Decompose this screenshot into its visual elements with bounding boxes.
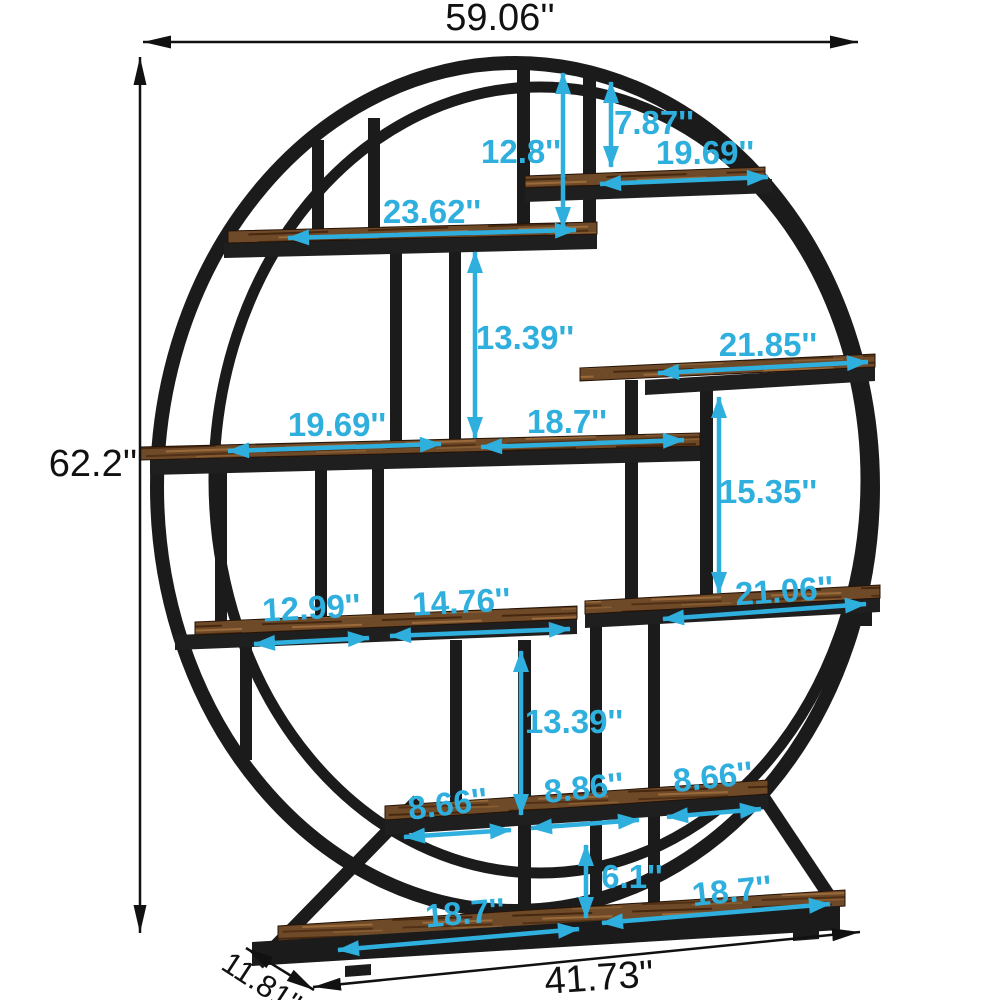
dim-label: 21.85'' <box>719 326 817 363</box>
dim-label: 12.8'' <box>481 133 561 170</box>
dim-label: 14.76'' <box>411 580 511 622</box>
frame-post <box>372 457 384 617</box>
frame-post <box>215 460 227 626</box>
frame-post <box>368 118 380 232</box>
dim-right-clearance-height: 15.35'' <box>719 397 817 593</box>
dim-label: 13.39'' <box>525 703 623 740</box>
frame-post <box>390 244 402 442</box>
dim-label: 18.7'' <box>424 891 507 935</box>
frame-post <box>449 244 461 440</box>
product-dimension-diagram: 59.06'' 62.2'' 41.73'' 11.81'' 12.8'' 7.… <box>0 0 1000 1000</box>
base-foot <box>345 964 371 977</box>
dim-label: 13.39'' <box>476 319 574 356</box>
dim-overall-width: 59.06'' <box>143 0 858 42</box>
base-right-leg <box>764 798 836 906</box>
dim-label: 15.35'' <box>719 473 817 510</box>
frame-post <box>583 71 596 242</box>
frame-post <box>625 380 638 604</box>
dim-overall-height: 62.2'' <box>49 57 140 933</box>
dim-label: 59.06'' <box>445 0 555 39</box>
dim-label: 6.1'' <box>601 858 663 895</box>
bookshelf-illustration <box>140 63 880 977</box>
dim-label: 62.2'' <box>49 443 137 485</box>
frame-post <box>700 378 713 600</box>
dim-label: 12.99'' <box>261 586 361 628</box>
dim-label: 23.62'' <box>383 193 481 230</box>
dim-label: 41.73'' <box>543 953 655 1000</box>
dim-label: 21.06'' <box>734 569 835 613</box>
dim-label: 19.69'' <box>656 134 754 171</box>
frame-post <box>240 640 252 760</box>
dim-label: 19.69'' <box>288 406 386 443</box>
dim-label: 18.7'' <box>527 403 607 440</box>
dimension-annotations: 59.06'' 62.2'' 41.73'' 11.81'' 12.8'' 7.… <box>49 0 868 1000</box>
frame-post <box>312 140 324 234</box>
